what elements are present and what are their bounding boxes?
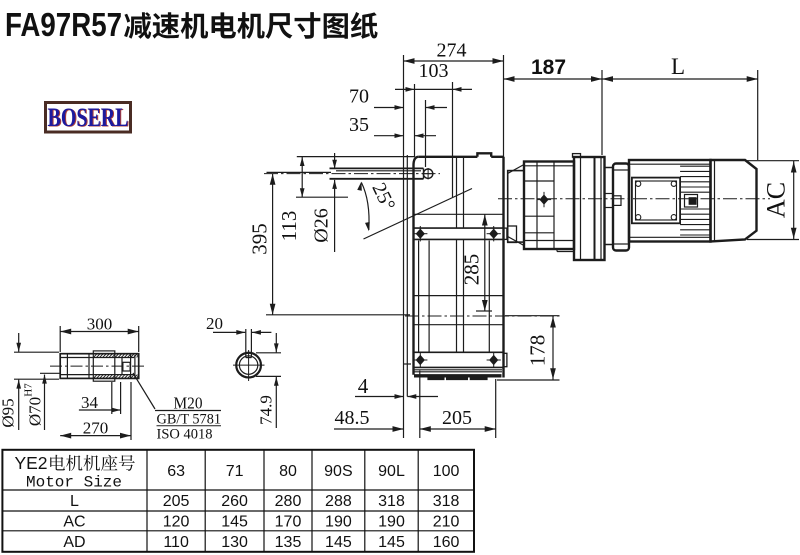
- svg-text:260: 260: [221, 493, 248, 510]
- svg-text:135: 135: [275, 534, 302, 551]
- svg-text:187: 187: [531, 56, 566, 79]
- svg-text:Ø70: Ø70: [26, 397, 45, 426]
- svg-text:74.9: 74.9: [257, 395, 276, 425]
- svg-text:190: 190: [325, 513, 352, 530]
- svg-text:35: 35: [349, 114, 369, 136]
- svg-text:90S: 90S: [324, 463, 352, 480]
- svg-text:AC: AC: [63, 513, 85, 530]
- svg-text:210: 210: [433, 513, 460, 530]
- svg-text:270: 270: [83, 419, 109, 438]
- svg-text:80: 80: [279, 463, 297, 480]
- svg-text:318: 318: [378, 493, 405, 510]
- svg-text:274: 274: [437, 40, 467, 62]
- svg-text:160: 160: [433, 534, 460, 551]
- svg-text:BOSERL: BOSERL: [48, 103, 129, 132]
- svg-text:288: 288: [325, 493, 352, 510]
- svg-text:Ø95: Ø95: [0, 398, 18, 427]
- svg-text:L: L: [70, 493, 79, 510]
- svg-text:145: 145: [325, 534, 352, 551]
- svg-text:Motor Size: Motor Size: [26, 474, 122, 492]
- svg-text:395: 395: [248, 223, 272, 255]
- svg-text:178: 178: [526, 335, 550, 367]
- svg-text:63: 63: [167, 463, 185, 480]
- svg-text:71: 71: [226, 463, 244, 480]
- svg-text:205: 205: [163, 493, 190, 510]
- svg-text:130: 130: [221, 534, 248, 551]
- svg-text:145: 145: [221, 513, 248, 530]
- svg-text:300: 300: [87, 315, 113, 334]
- svg-text:70: 70: [349, 86, 369, 108]
- svg-text:34: 34: [81, 393, 99, 412]
- svg-text:280: 280: [275, 493, 302, 510]
- svg-text:48.5: 48.5: [335, 407, 370, 429]
- svg-text:M20: M20: [174, 394, 203, 413]
- svg-text:AD: AD: [63, 534, 85, 551]
- svg-text:103: 103: [419, 60, 449, 82]
- svg-text:90L: 90L: [378, 463, 405, 480]
- svg-text:285: 285: [460, 254, 484, 286]
- svg-text:205: 205: [442, 407, 472, 429]
- svg-text:145: 145: [378, 534, 405, 551]
- svg-text:H7: H7: [23, 383, 35, 397]
- svg-text:L: L: [671, 54, 685, 79]
- svg-text:20: 20: [206, 314, 223, 333]
- svg-text:100: 100: [433, 463, 460, 480]
- svg-text:110: 110: [163, 534, 189, 551]
- svg-text:120: 120: [163, 513, 190, 530]
- svg-text:GB/T 5781: GB/T 5781: [157, 412, 222, 428]
- svg-text:FA97R57: FA97R57: [5, 6, 122, 43]
- svg-text:ISO 4018: ISO 4018: [157, 427, 213, 443]
- svg-text:318: 318: [433, 493, 460, 510]
- svg-text:AC: AC: [762, 182, 791, 218]
- svg-text:YE2: YE2: [14, 453, 47, 473]
- svg-text:190: 190: [378, 513, 405, 530]
- svg-text:170: 170: [275, 513, 302, 530]
- svg-text:113: 113: [277, 211, 301, 242]
- svg-text:Ø26: Ø26: [311, 208, 333, 242]
- svg-text:4: 4: [358, 374, 369, 398]
